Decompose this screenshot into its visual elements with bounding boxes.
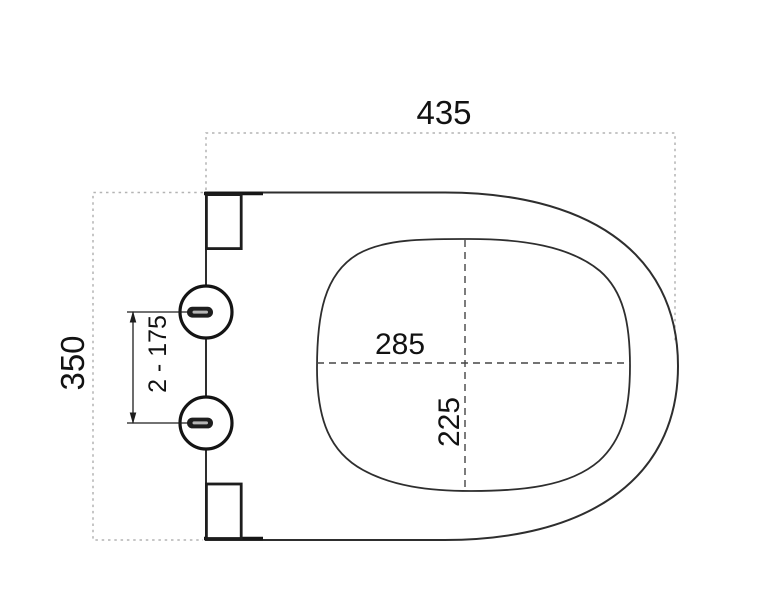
hinge-mount-bottom <box>206 484 241 539</box>
drawing-page: 435 350 285 225 2 - 175 <box>0 0 780 600</box>
slot-slit-icon <box>193 311 209 314</box>
slot-slit-icon <box>193 421 209 424</box>
label-inner-width: 285 <box>375 328 425 361</box>
hinge-slot-bottom <box>187 418 213 429</box>
seat-outer-outline <box>206 193 678 541</box>
seat-inner-opening <box>317 239 630 491</box>
label-hinge-spacing: 2 - 175 <box>144 315 172 393</box>
dimension-arrow-down-icon <box>130 413 137 425</box>
hinge-mount-top <box>206 195 241 249</box>
centerlines <box>317 240 630 491</box>
hinge-mounts <box>204 194 263 539</box>
hinge-slot-top <box>187 307 213 318</box>
label-overall-width: 435 <box>416 94 471 131</box>
dimension-labels: 435 350 285 225 2 - 175 <box>54 94 472 447</box>
technical-drawing: 435 350 285 225 2 - 175 <box>0 0 780 600</box>
label-inner-depth: 225 <box>433 397 466 447</box>
label-overall-depth: 350 <box>54 335 91 390</box>
dimension-arrow-up-icon <box>130 311 137 323</box>
